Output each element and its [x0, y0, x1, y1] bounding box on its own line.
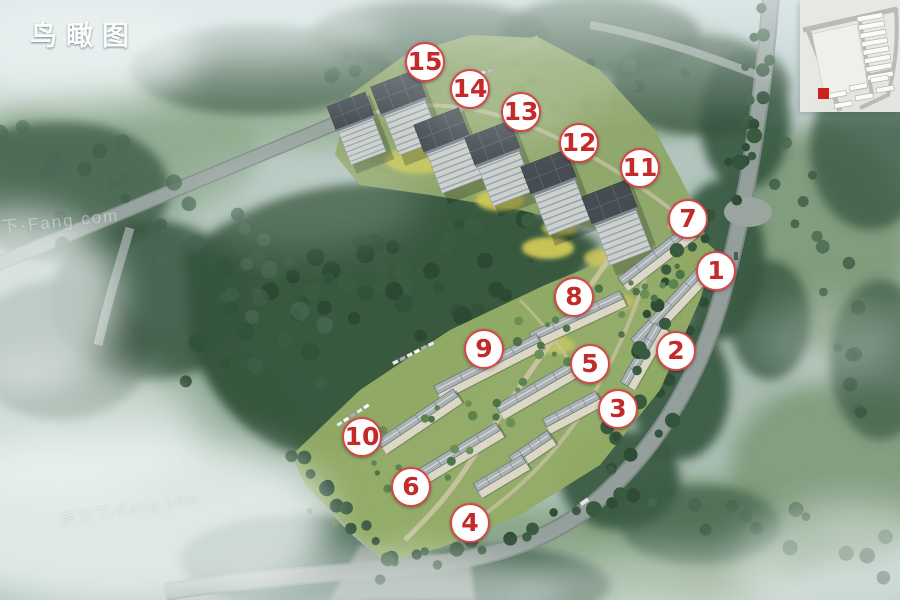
building-marker-2: 2 [656, 331, 696, 371]
page-title: 鸟瞰图 [30, 14, 138, 53]
inset-map [800, 0, 900, 112]
building-marker-11: 11 [620, 148, 660, 188]
building-marker-10: 10 [342, 417, 382, 457]
road-widening [724, 197, 772, 227]
building-marker-9: 9 [464, 329, 504, 369]
building-marker-15: 15 [405, 42, 445, 82]
building-marker-14: 14 [450, 69, 490, 109]
building-marker-7: 7 [668, 199, 708, 239]
building-marker-1: 1 [696, 251, 736, 291]
building-marker-5: 5 [570, 344, 610, 384]
building-marker-3: 3 [598, 389, 638, 429]
building-marker-4: 4 [450, 503, 490, 543]
birdseye-view: 鸟瞰图 天下·Fang.com 房天下·Fang.com 12345678910… [0, 0, 900, 600]
building-marker-13: 13 [501, 92, 541, 132]
inset-location-marker [818, 88, 829, 99]
building-marker-6: 6 [391, 467, 431, 507]
building-marker-8: 8 [554, 277, 594, 317]
building-marker-12: 12 [559, 123, 599, 163]
